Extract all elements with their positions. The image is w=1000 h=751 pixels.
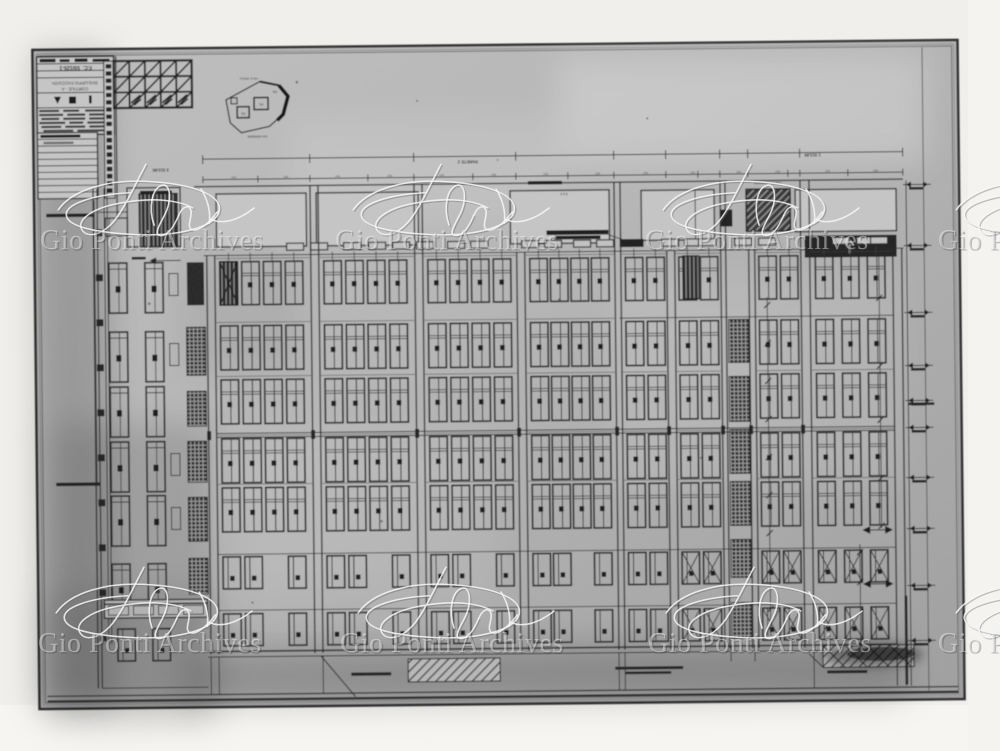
- svg-text:Gio Ponti Archives: Gio Ponti Archives: [340, 628, 564, 659]
- svg-text:Gio Ponti Archives: Gio Ponti Archives: [938, 225, 1000, 256]
- svg-text:Gio Ponti Archives: Gio Ponti Archives: [645, 225, 869, 256]
- svg-text:Gio Ponti Archives: Gio Ponti Archives: [335, 225, 559, 256]
- svg-text:Gio Ponti Archives: Gio Ponti Archives: [938, 628, 1000, 659]
- svg-text:Gio Ponti Archives: Gio Ponti Archives: [38, 628, 262, 659]
- svg-text:Gio Ponti Archives: Gio Ponti Archives: [648, 628, 872, 659]
- svg-text:Gio Ponti Archives: Gio Ponti Archives: [40, 225, 264, 256]
